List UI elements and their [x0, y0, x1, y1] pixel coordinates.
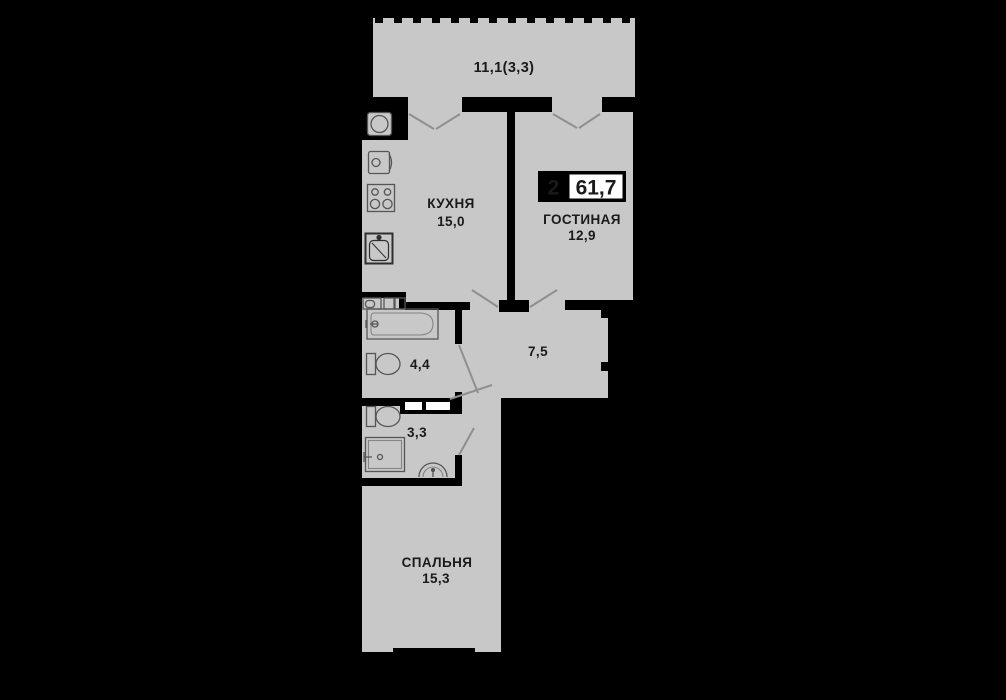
- window-opening: [408, 97, 462, 112]
- window-opening: [552, 97, 602, 112]
- vent-duct-icon: [368, 113, 392, 136]
- living-room-floor: [515, 112, 633, 300]
- wall: [565, 300, 641, 310]
- kitchen-name-label: КУХНЯ: [427, 196, 474, 211]
- vent-shaft-icon: [400, 398, 457, 414]
- wall: [462, 302, 470, 310]
- bathroom-area-label: 4,4: [410, 357, 430, 372]
- hallway-area-label: 7,5: [528, 344, 548, 359]
- kitchen-area-label: 15,0: [437, 214, 465, 229]
- kitchen-doorway: [470, 302, 499, 312]
- wall: [455, 309, 462, 344]
- living-room-area-label: 12,9: [568, 228, 596, 243]
- living-room-name-label: ГОСТИНАЯ: [543, 212, 621, 227]
- balcony-area-label: 11,1(3,3): [474, 60, 535, 76]
- badge-room-count: 2: [548, 177, 560, 200]
- wc-area-label: 3,3: [407, 425, 427, 440]
- bedroom-name-label: СПАЛЬНЯ: [402, 555, 473, 570]
- balcony-floor: [373, 18, 635, 97]
- wall: [362, 478, 457, 486]
- area-badge: 2 61,7: [538, 171, 626, 202]
- bedroom-window: [393, 648, 475, 652]
- wall: [362, 292, 405, 298]
- floor-plan: 2 61,7 11,1(3,3) КУХНЯ 15,0 ГОСТИНАЯ 12,…: [0, 0, 1006, 700]
- wall: [499, 300, 529, 312]
- wall: [362, 398, 402, 406]
- bedroom-area-label: 15,3: [422, 571, 450, 586]
- entrance-jamb: [601, 362, 609, 371]
- toilet-icon: [367, 407, 401, 427]
- wall: [507, 112, 515, 304]
- entrance-jamb: [601, 310, 609, 318]
- badge-total-area: 61,7: [576, 177, 617, 200]
- toilet-icon: [367, 354, 401, 375]
